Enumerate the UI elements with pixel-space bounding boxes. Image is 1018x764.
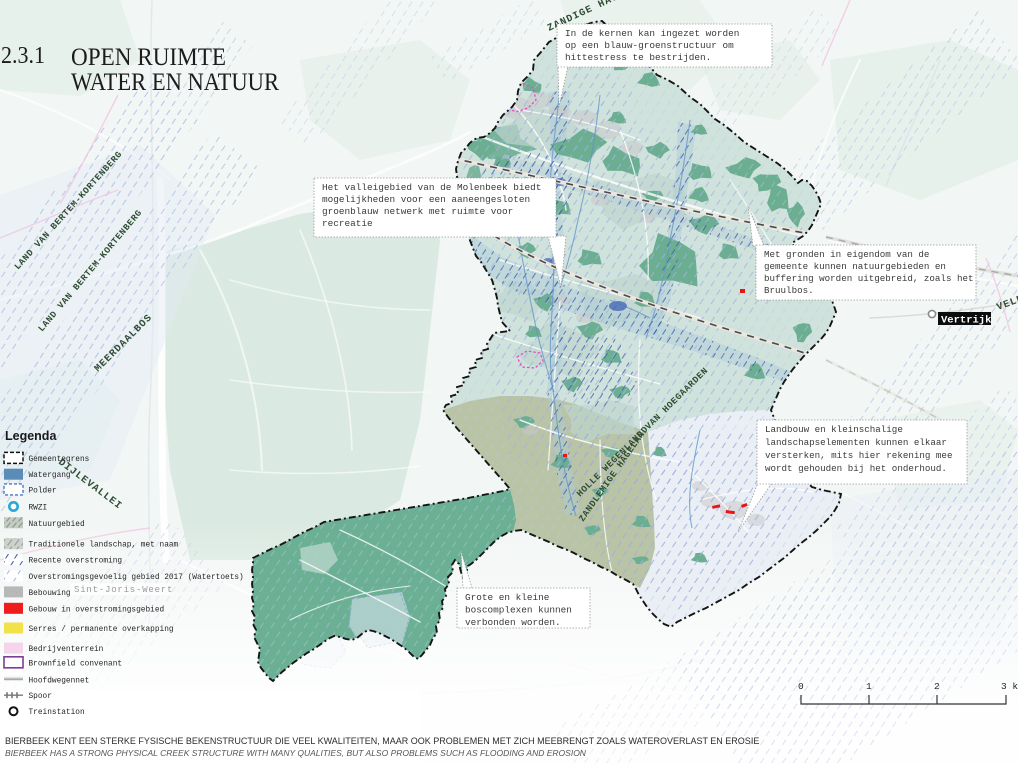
svg-text:Recente overstroming: Recente overstroming	[29, 558, 123, 566]
svg-text:Met gronden in eigendom van de: Met gronden in eigendom van de	[764, 249, 929, 260]
svg-text:3 km: 3 km	[1001, 681, 1018, 692]
svg-text:Gemeentegrens: Gemeentegrens	[29, 456, 90, 464]
svg-text:1: 1	[866, 681, 872, 692]
svg-text:versterken, mits hier rekening: versterken, mits hier rekening mee	[765, 450, 952, 461]
svg-text:Landbouw en kleinschalige: Landbouw en kleinschalige	[765, 424, 903, 435]
svg-text:Serres / permanente overkappin: Serres / permanente overkapping	[29, 626, 174, 634]
svg-text:Hoofdwegennet: Hoofdwegennet	[29, 677, 90, 685]
svg-text:BIERBEEK HAS A STRONG PHYSICAL: BIERBEEK HAS A STRONG PHYSICAL CREEK STR…	[5, 748, 587, 758]
svg-text:Spoor: Spoor	[29, 693, 52, 701]
svg-text:op een blauw-groenstructuur om: op een blauw-groenstructuur om	[565, 40, 734, 51]
svg-text:gemeente kunnen natuurgebieden: gemeente kunnen natuurgebieden en	[764, 261, 946, 272]
svg-text:Bebouwing: Bebouwing	[29, 590, 71, 598]
svg-text:wordt gehouden bij het onderho: wordt gehouden bij het onderhoud.	[765, 463, 947, 474]
svg-text:BIERBEEK KENT EEN STERKE FYSIS: BIERBEEK KENT EEN STERKE FYSISCHE BEKENS…	[5, 736, 759, 746]
svg-text:Traditionele landschap, met na: Traditionele landschap, met naam	[29, 542, 179, 550]
svg-text:2: 2	[934, 681, 940, 692]
svg-text:boscomplexen kunnen: boscomplexen kunnen	[465, 605, 572, 616]
svg-text:Natuurgebied: Natuurgebied	[29, 521, 85, 529]
svg-text:landschapselementen kunnen elk: landschapselementen kunnen elkaar	[765, 437, 947, 448]
svg-text:hittestress te bestrijden.: hittestress te bestrijden.	[565, 52, 711, 63]
svg-text:Sint-Joris-Weert: Sint-Joris-Weert	[74, 585, 173, 595]
svg-text:mogelijkheden voor een aaneeng: mogelijkheden voor een aaneengesloten	[322, 194, 530, 205]
svg-text:Treinstation: Treinstation	[29, 709, 85, 717]
svg-text:Overstromingsgevoelig gebied 2: Overstromingsgevoelig gebied 2017 (Water…	[29, 574, 244, 582]
svg-text:verbonden worden.: verbonden worden.	[465, 617, 561, 628]
svg-text:Bedrijventerrein: Bedrijventerrein	[29, 646, 104, 654]
svg-text:Het valleigebied van de Molenb: Het valleigebied van de Molenbeek biedt	[322, 182, 541, 193]
svg-text:Gebouw in overstromingsgebied: Gebouw in overstromingsgebied	[29, 606, 165, 614]
svg-text:2.3.1: 2.3.1	[1, 43, 45, 69]
svg-text:Bruulbos.: Bruulbos.	[764, 285, 814, 296]
svg-text:groenblauw netwerk met ruimte: groenblauw netwerk met ruimte voor	[322, 206, 513, 217]
svg-text:Polder: Polder	[29, 487, 57, 495]
svg-text:0: 0	[798, 681, 804, 692]
svg-text:WATER EN NATUUR: WATER EN NATUUR	[71, 69, 279, 96]
svg-text:OPEN RUIMTE: OPEN RUIMTE	[71, 44, 226, 71]
svg-text:In de kernen kan ingezet worde: In de kernen kan ingezet worden	[565, 28, 739, 39]
svg-text:Vertrijk: Vertrijk	[941, 315, 991, 327]
svg-text:Brownfield convenant: Brownfield convenant	[29, 660, 123, 668]
svg-text:Legenda: Legenda	[5, 429, 57, 443]
svg-text:buffering worden uitgebreid, z: buffering worden uitgebreid, zoals het	[764, 273, 974, 284]
svg-text:RWZI: RWZI	[29, 505, 48, 513]
svg-text:Grote en kleine: Grote en kleine	[465, 592, 550, 603]
svg-text:recreatie: recreatie	[322, 218, 373, 229]
svg-text:Watergang: Watergang	[29, 472, 71, 480]
